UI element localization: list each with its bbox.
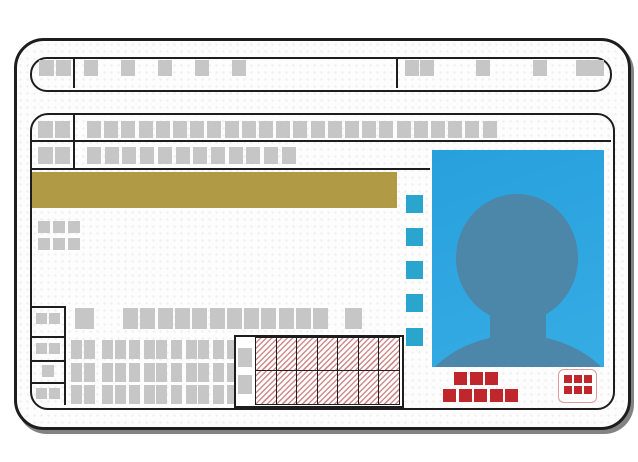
photo-area [432,150,604,367]
seal-dot [574,375,582,383]
id-card-illustration [0,0,638,462]
seal-stamp-box [558,369,597,403]
seal-dot [574,386,582,394]
silhouette-shoulders [432,335,604,367]
validity-table [234,335,404,408]
seal-dot [584,375,592,383]
seal-dot [584,386,592,394]
card-header-row [30,57,612,92]
seal-dot [564,386,572,394]
seal-dot [564,375,572,383]
